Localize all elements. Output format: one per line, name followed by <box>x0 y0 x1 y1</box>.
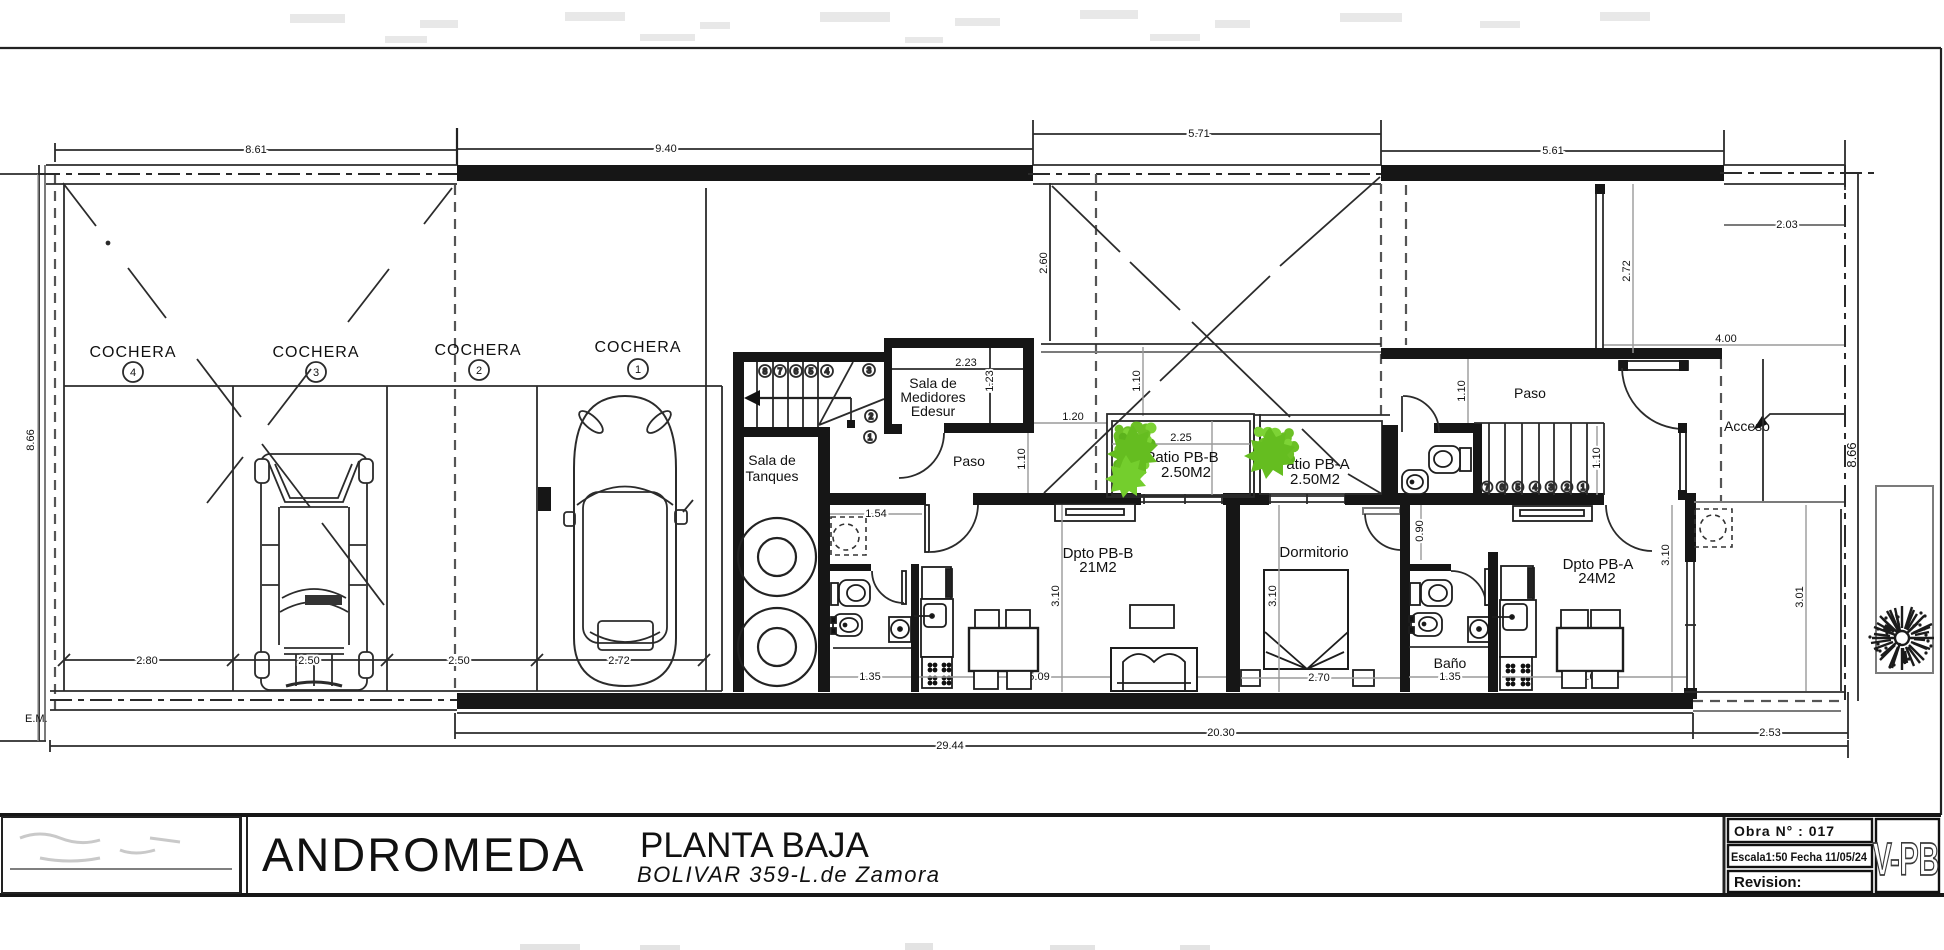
svg-text:1.10: 1.10 <box>1456 380 1468 401</box>
svg-text:1.35: 1.35 <box>1439 671 1460 683</box>
svg-text:2.70: 2.70 <box>1308 672 1329 684</box>
svg-text:1.10: 1.10 <box>1016 448 1028 469</box>
svg-text:7: 7 <box>778 367 783 376</box>
svg-text:E.M.: E.M. <box>25 713 48 725</box>
svg-text:3.10: 3.10 <box>1050 585 1062 606</box>
svg-text:2.72: 2.72 <box>1621 260 1633 281</box>
svg-text:2.53: 2.53 <box>1759 727 1780 739</box>
svg-text:2.80: 2.80 <box>136 655 157 667</box>
svg-text:4: 4 <box>1533 483 1538 492</box>
svg-text:2.50M2: 2.50M2 <box>1161 464 1211 481</box>
svg-text:2.50M2: 2.50M2 <box>1290 471 1340 488</box>
svg-text:21M2: 21M2 <box>1079 559 1117 576</box>
svg-text:1.23: 1.23 <box>984 370 996 391</box>
svg-text:3: 3 <box>867 366 872 375</box>
svg-text:Revision:: Revision: <box>1734 874 1802 891</box>
svg-text:Sala de: Sala de <box>748 452 796 468</box>
svg-text:8.61: 8.61 <box>245 144 266 156</box>
svg-text:29.44: 29.44 <box>936 740 964 752</box>
svg-text:5: 5 <box>1516 483 1521 492</box>
svg-text:PLANTA BAJA: PLANTA BAJA <box>640 826 870 865</box>
svg-text:BOLIVAR 359-L.de Zamora: BOLIVAR 359-L.de Zamora <box>637 862 941 887</box>
svg-text:8: 8 <box>763 367 768 376</box>
svg-text:Paso: Paso <box>1514 385 1546 401</box>
svg-text:Paso: Paso <box>953 453 985 469</box>
svg-text:2.03: 2.03 <box>1776 219 1797 231</box>
svg-text:1: 1 <box>1581 483 1586 492</box>
svg-text:ANDROMEDA: ANDROMEDA <box>262 828 586 881</box>
svg-text:8.66: 8.66 <box>25 429 37 450</box>
svg-text:24M2: 24M2 <box>1578 570 1616 587</box>
svg-text:Dormitorio: Dormitorio <box>1279 544 1348 561</box>
svg-text:3: 3 <box>1549 483 1554 492</box>
svg-text:1.35: 1.35 <box>859 671 880 683</box>
svg-text:COCHERA: COCHERA <box>434 342 521 359</box>
svg-text:4.00: 4.00 <box>1715 333 1736 345</box>
svg-text:1: 1 <box>635 364 641 376</box>
svg-text:5.61: 5.61 <box>1542 145 1563 157</box>
svg-text:1.10: 1.10 <box>1591 447 1603 468</box>
svg-text:Tanques: Tanques <box>746 468 799 484</box>
svg-text:1.20: 1.20 <box>1062 411 1083 423</box>
svg-text:3.10: 3.10 <box>1660 544 1672 565</box>
svg-text:20.30: 20.30 <box>1207 727 1235 739</box>
svg-text:2: 2 <box>869 412 874 421</box>
svg-text:6: 6 <box>794 367 799 376</box>
svg-text:2: 2 <box>476 365 482 377</box>
svg-text:3.01: 3.01 <box>1794 586 1806 607</box>
svg-text:3: 3 <box>313 367 319 379</box>
svg-text:2.60: 2.60 <box>1038 252 1050 273</box>
svg-text:2.23: 2.23 <box>955 357 976 369</box>
svg-text:Baño: Baño <box>1434 655 1467 671</box>
svg-text:4: 4 <box>825 367 830 376</box>
svg-text:1: 1 <box>868 433 873 442</box>
svg-text:2.72: 2.72 <box>608 655 629 667</box>
svg-text:COCHERA: COCHERA <box>89 344 176 361</box>
svg-text:V-PB: V-PB <box>1873 834 1940 886</box>
svg-text:2.25: 2.25 <box>1170 432 1191 444</box>
svg-text:2.50: 2.50 <box>298 655 319 667</box>
svg-text:COCHERA: COCHERA <box>272 344 359 361</box>
svg-text:COCHERA: COCHERA <box>594 339 681 356</box>
svg-text:Edesur: Edesur <box>911 403 956 419</box>
svg-text:6: 6 <box>1500 483 1505 492</box>
svg-text:2: 2 <box>1565 483 1570 492</box>
svg-text:7: 7 <box>1485 483 1490 492</box>
svg-text:1.10: 1.10 <box>1131 370 1143 391</box>
svg-text:Escala1:50 Fecha 11/05/24: Escala1:50 Fecha 11/05/24 <box>1731 850 1867 864</box>
svg-text:Obra N° : 017: Obra N° : 017 <box>1734 823 1835 839</box>
svg-text:8.66: 8.66 <box>1844 442 1859 467</box>
svg-text:1.54: 1.54 <box>865 508 886 520</box>
svg-text:4: 4 <box>130 367 136 379</box>
svg-text:3.10: 3.10 <box>1267 585 1279 606</box>
svg-text:9.40: 9.40 <box>655 143 676 155</box>
svg-text:5: 5 <box>809 367 814 376</box>
svg-text:5.71: 5.71 <box>1188 128 1209 140</box>
svg-text:0.90: 0.90 <box>1414 520 1426 541</box>
svg-text:2.50: 2.50 <box>448 655 469 667</box>
